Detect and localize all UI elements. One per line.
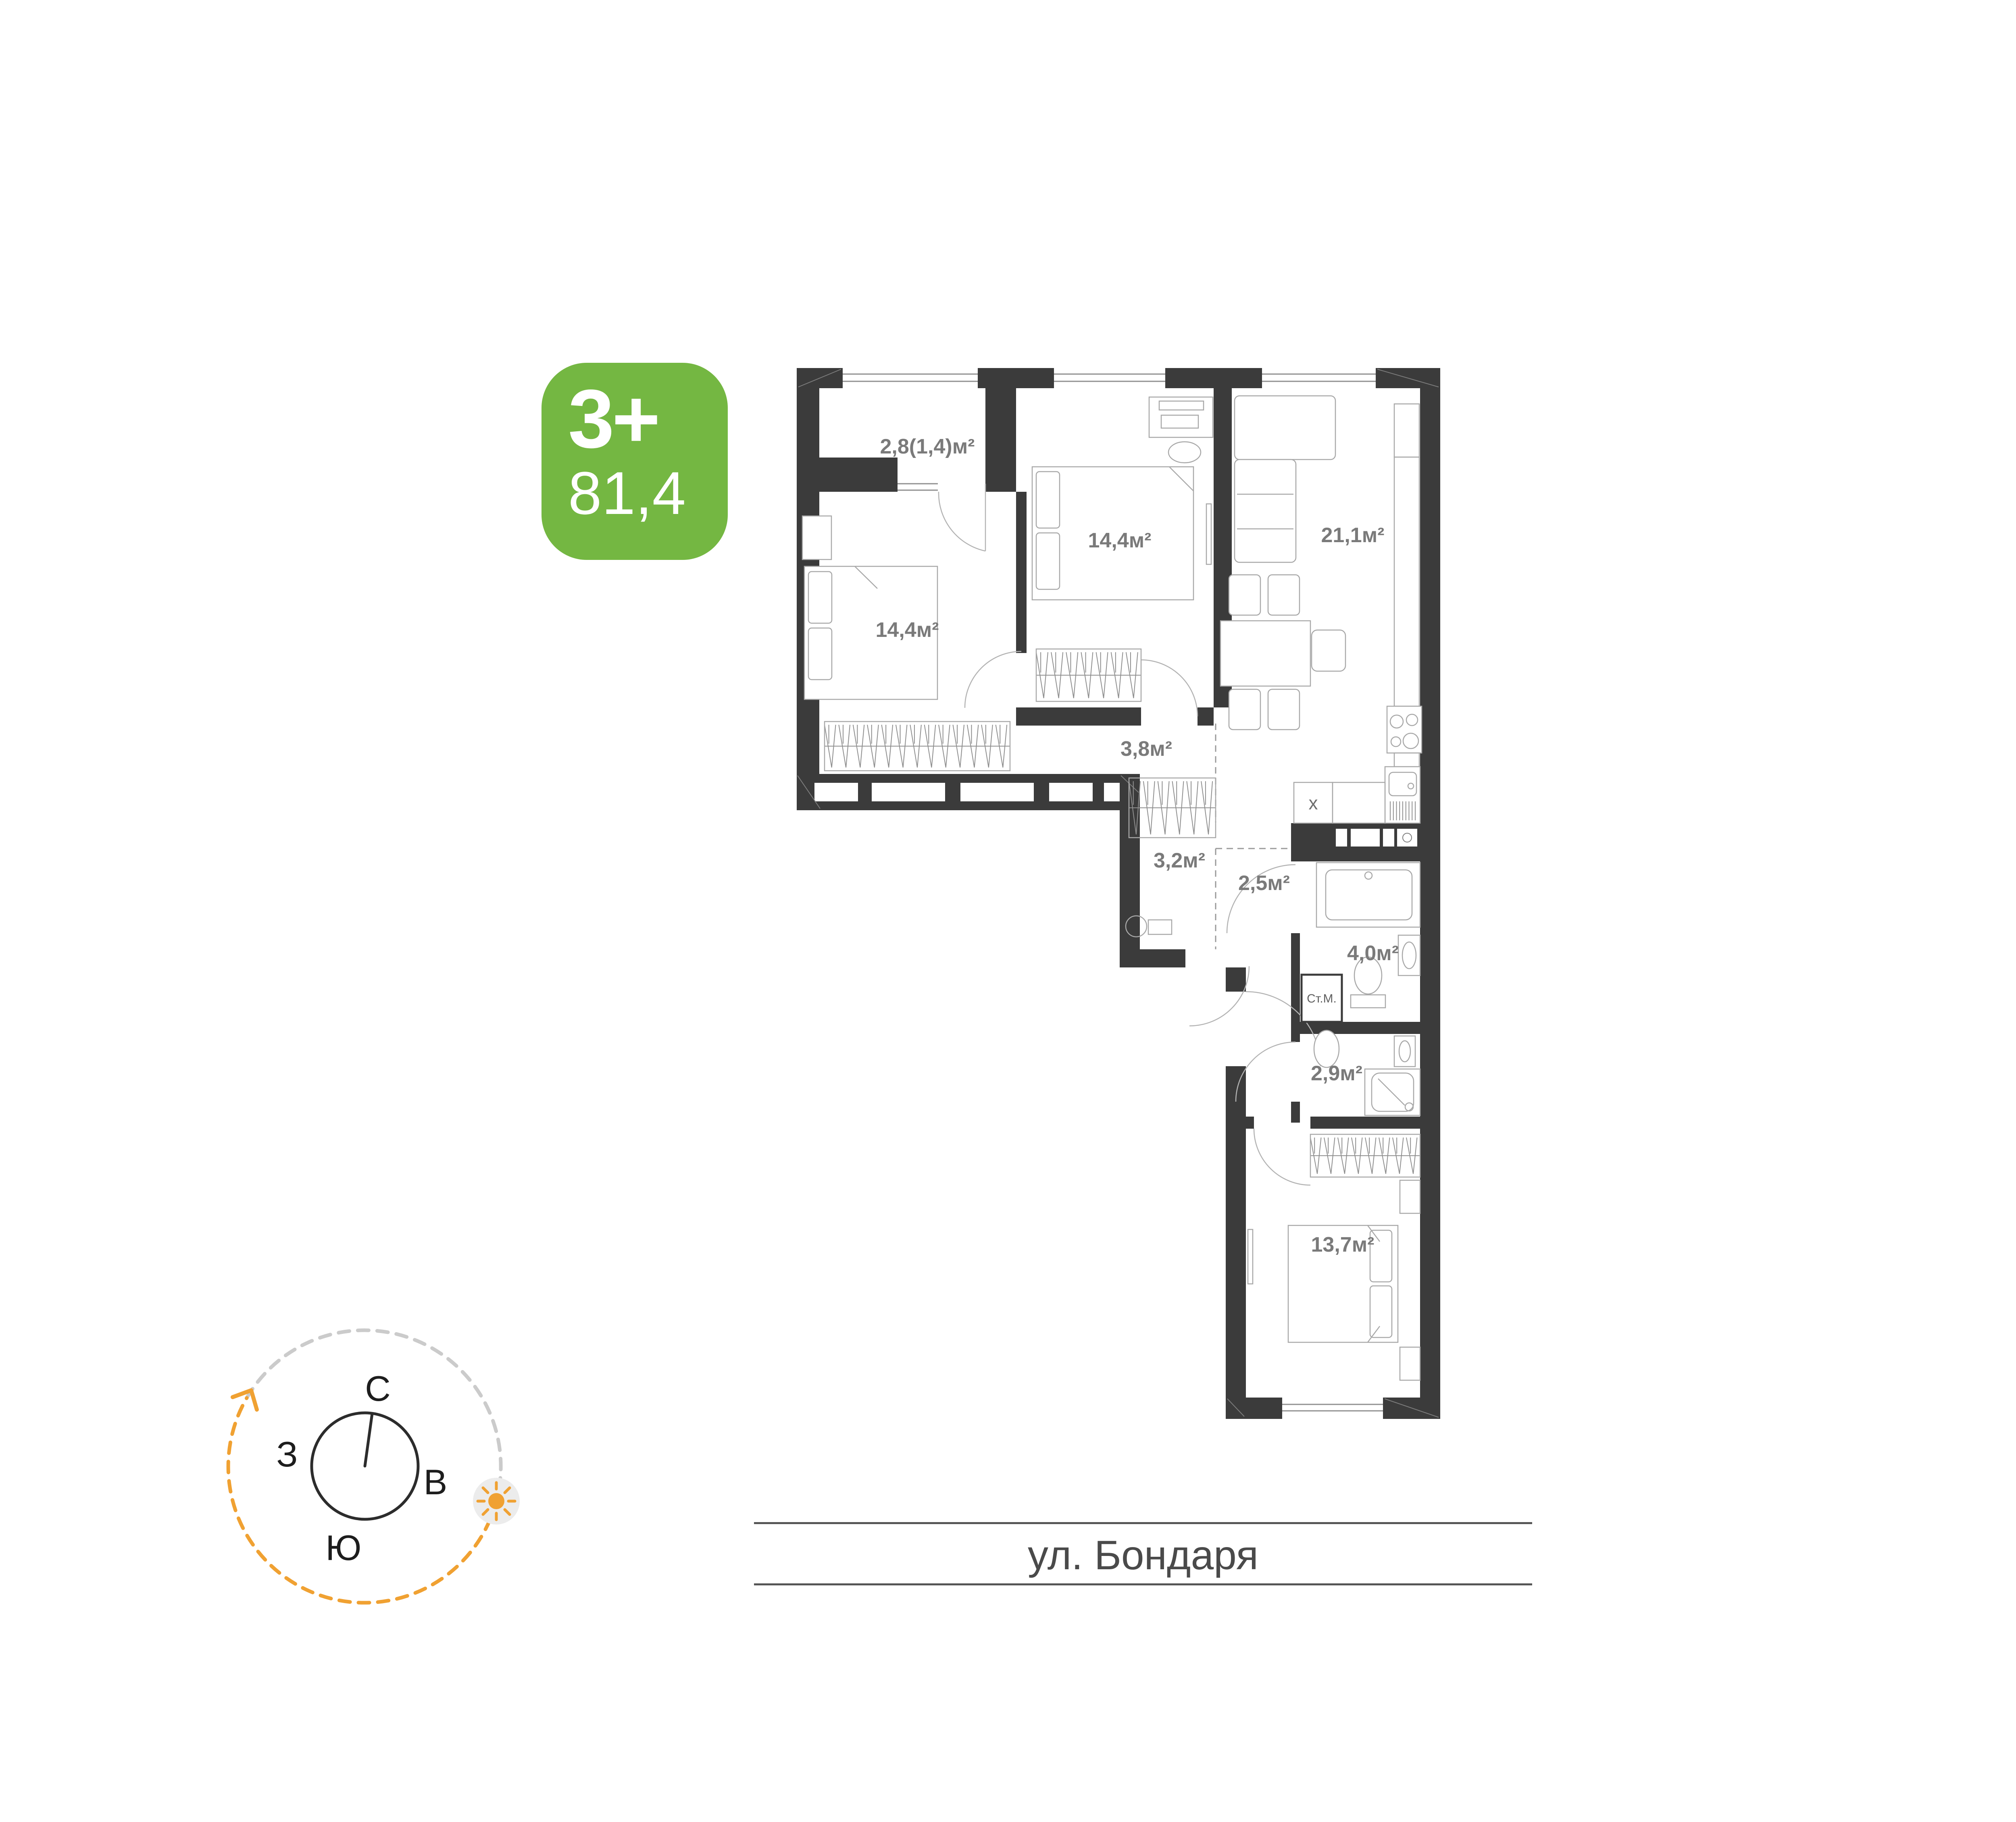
room-label-bedroom-top: 14,4м² <box>1088 529 1152 552</box>
bedroom-top-door-arc <box>1141 660 1198 716</box>
room-label-balcony: 2,8(1,4)м² <box>880 435 975 458</box>
bedroom-bottom-door-arc <box>1254 1129 1310 1185</box>
nightstand-icon <box>802 516 831 559</box>
badge-rooms-label: 3+ <box>568 377 658 460</box>
nightstand-icon <box>1400 1180 1420 1213</box>
kitchen-counter-icon <box>1394 457 1419 706</box>
room-label-bedroom-left: 14,4м² <box>876 618 939 642</box>
wardrobe-icon <box>1310 1138 1420 1174</box>
compass-north: С <box>365 1369 391 1408</box>
room-label-entry-hall: 3,2м² <box>1154 849 1205 872</box>
wardrobe-icon <box>1129 781 1216 834</box>
compass-west: З <box>276 1434 298 1474</box>
zone-boundaries <box>1216 724 1291 949</box>
chair-icon <box>1268 575 1300 615</box>
chair-icon <box>1268 689 1300 730</box>
fridge-icon <box>1394 404 1419 457</box>
room-label-bathroom: 4,0м² <box>1347 942 1399 965</box>
room-label-washing: Ст.М. <box>1307 992 1337 1005</box>
chair-icon <box>1168 442 1201 463</box>
sink-icon <box>1398 935 1420 975</box>
dishwasher-mark: х <box>1309 792 1318 813</box>
arrow-icon <box>233 1390 257 1410</box>
street-bottom-label: ул. Бондаря <box>754 1532 1532 1579</box>
floor-plan: х 2,8( <box>786 359 1464 1427</box>
room-label-hall: 3,8м² <box>1120 737 1172 761</box>
badge-area-label: 81,4 <box>568 463 686 523</box>
compass-south: Ю <box>326 1528 362 1568</box>
compass-east: В <box>424 1462 448 1502</box>
room-label-corridor: 2,5м² <box>1238 871 1290 895</box>
wardrobe-icon <box>1036 652 1141 698</box>
room-label-bedroom-bottom: 13,7м² <box>1311 1233 1375 1256</box>
compass-dial: С З В Ю <box>276 1369 447 1568</box>
compass: С З В Ю <box>218 1318 536 1653</box>
street-bottom-line-bottom <box>754 1583 1532 1585</box>
balcony-door-arc <box>939 492 985 551</box>
bedroom-left-door-arc <box>965 651 1021 708</box>
room-label-living: 21,1м² <box>1321 524 1385 547</box>
dining-table-icon <box>1220 621 1310 686</box>
apartment-badge: 3+ 81,4 <box>541 363 728 560</box>
tv-icon <box>1248 1229 1253 1284</box>
armchair-icon <box>1312 630 1345 671</box>
sofa-icon <box>1235 396 1335 460</box>
sun-icon <box>473 1478 520 1525</box>
wardrobe-icon <box>825 725 1010 767</box>
chair-icon <box>1229 575 1260 615</box>
nightstand-icon <box>1400 1347 1420 1380</box>
tv-icon <box>1206 504 1211 564</box>
page: { "page": {"width": 5760, "height": 4520… <box>0 0 2016 1822</box>
room-label-wc: 2,9м² <box>1311 1062 1362 1085</box>
chair-icon <box>1229 689 1260 730</box>
street-bottom-line-top <box>754 1522 1532 1524</box>
